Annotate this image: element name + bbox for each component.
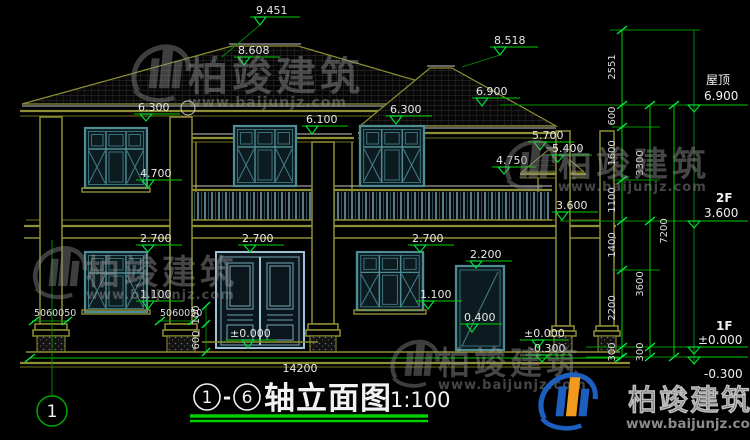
win-2f-sill-elevation: 4.700: [140, 167, 172, 180]
watermark-right: 柏竣建筑 www.baijunjz.com: [507, 142, 710, 195]
title-separator: -: [223, 385, 231, 409]
title-axis-start: 1: [202, 388, 213, 408]
side-door-top-elevation: 2.200: [470, 248, 502, 261]
watermark-top: 柏竣建筑 www.baijunjz.com: [134, 47, 364, 111]
overall-width-value: 14200: [283, 362, 318, 375]
center-pilaster: [306, 142, 340, 352]
watermark-brand: 柏竣建筑: [628, 383, 750, 417]
ridge-right-elevation: 8.518: [494, 34, 526, 47]
watermark-url: www.baijunjz.com: [188, 95, 347, 111]
roof-level-value: 6.900: [704, 89, 738, 103]
dim-1400: 1400: [607, 232, 618, 257]
f2-level-value: 3.600: [704, 206, 738, 220]
dim-300a: 300: [607, 342, 618, 361]
dim-2200: 2200: [607, 295, 618, 320]
window-2f-center: [234, 126, 296, 186]
f2-level-label: 2F: [716, 191, 733, 205]
axis-bubble-number: 1: [47, 402, 58, 422]
dim-600: 600: [607, 106, 618, 125]
watermark-brand: 柏竣建筑: [86, 253, 238, 293]
win-1f-right-top-elevation: 2.700: [412, 232, 444, 245]
watermark-url: www.baijunjz.com: [86, 288, 235, 303]
window-2f-left: [82, 128, 150, 192]
porch-eave-elevation: 6.100: [306, 113, 338, 126]
window-2f-right: [360, 126, 424, 186]
watermark-left: 柏竣建筑 www.baijunjz.com: [35, 248, 238, 303]
dim-3600: 3600: [635, 271, 646, 296]
door-level-elevation: ±0.000: [230, 327, 271, 340]
f1-level-label: 1F: [716, 319, 733, 333]
ridge-main-elevation: 9.451: [256, 4, 288, 17]
watermark-brand: 柏竣建筑: [558, 145, 710, 185]
side-door: [456, 266, 504, 350]
watermark-bottom: 柏竣建筑 www.baijunjz.com: [393, 342, 587, 393]
roof-level-label: 屋顶: [706, 73, 730, 87]
base-level-value: -0.300: [704, 367, 743, 381]
cad-elevation-svg: 9.451 8.608 8.518 6.900 6.300 6.300 6.10…: [0, 0, 750, 440]
door-top-elevation: 2.700: [242, 232, 274, 245]
step-dim-100: 100: [191, 305, 202, 324]
watermark-url: www.baijunjz.com: [558, 180, 707, 195]
balcony-railing: [190, 186, 552, 220]
win-1f-right-sill-elevation: 1.100: [420, 288, 452, 301]
step-dim-600: 600: [191, 330, 202, 349]
eave-main-elevation: 6.900: [476, 85, 508, 98]
eave-left-elevation: 6.300: [138, 101, 170, 114]
watermark-brand: 柏竣建筑: [188, 54, 364, 100]
elevation-drawing-canvas: 9.451 8.608 8.518 6.900 6.300 6.300 6.10…: [0, 0, 750, 440]
win-2f-top-elevation: 6.300: [390, 103, 422, 116]
win-1f-left-top-elevation: 2.700: [140, 232, 172, 245]
dim-7200: 7200: [659, 218, 670, 243]
drawing-title: 轴立面图: [264, 381, 392, 417]
side-level-elevation: ±0.000: [524, 327, 565, 340]
watermark-logo-color: 柏竣建筑 www.baijunjz.com: [541, 375, 750, 432]
dim-300b: 300: [635, 342, 646, 361]
window-1f-right: [354, 252, 426, 314]
f1-level-value: ±0.000: [698, 333, 742, 347]
col-base-left-dim: 5060050: [34, 308, 76, 319]
dim-roof-rise: 2551: [607, 54, 618, 79]
balcony-elevation: 3.600: [556, 199, 588, 212]
right-level-markers: 屋顶 6.900 2F 3.600 1F ±0.000 -0.300: [686, 30, 748, 381]
title-axis-end: 6: [242, 388, 253, 408]
watermark-url: www.baijunjz.com: [626, 416, 750, 432]
drawing-scale: 1:100: [390, 388, 451, 412]
side-step-elevation: 0.400: [464, 311, 496, 324]
